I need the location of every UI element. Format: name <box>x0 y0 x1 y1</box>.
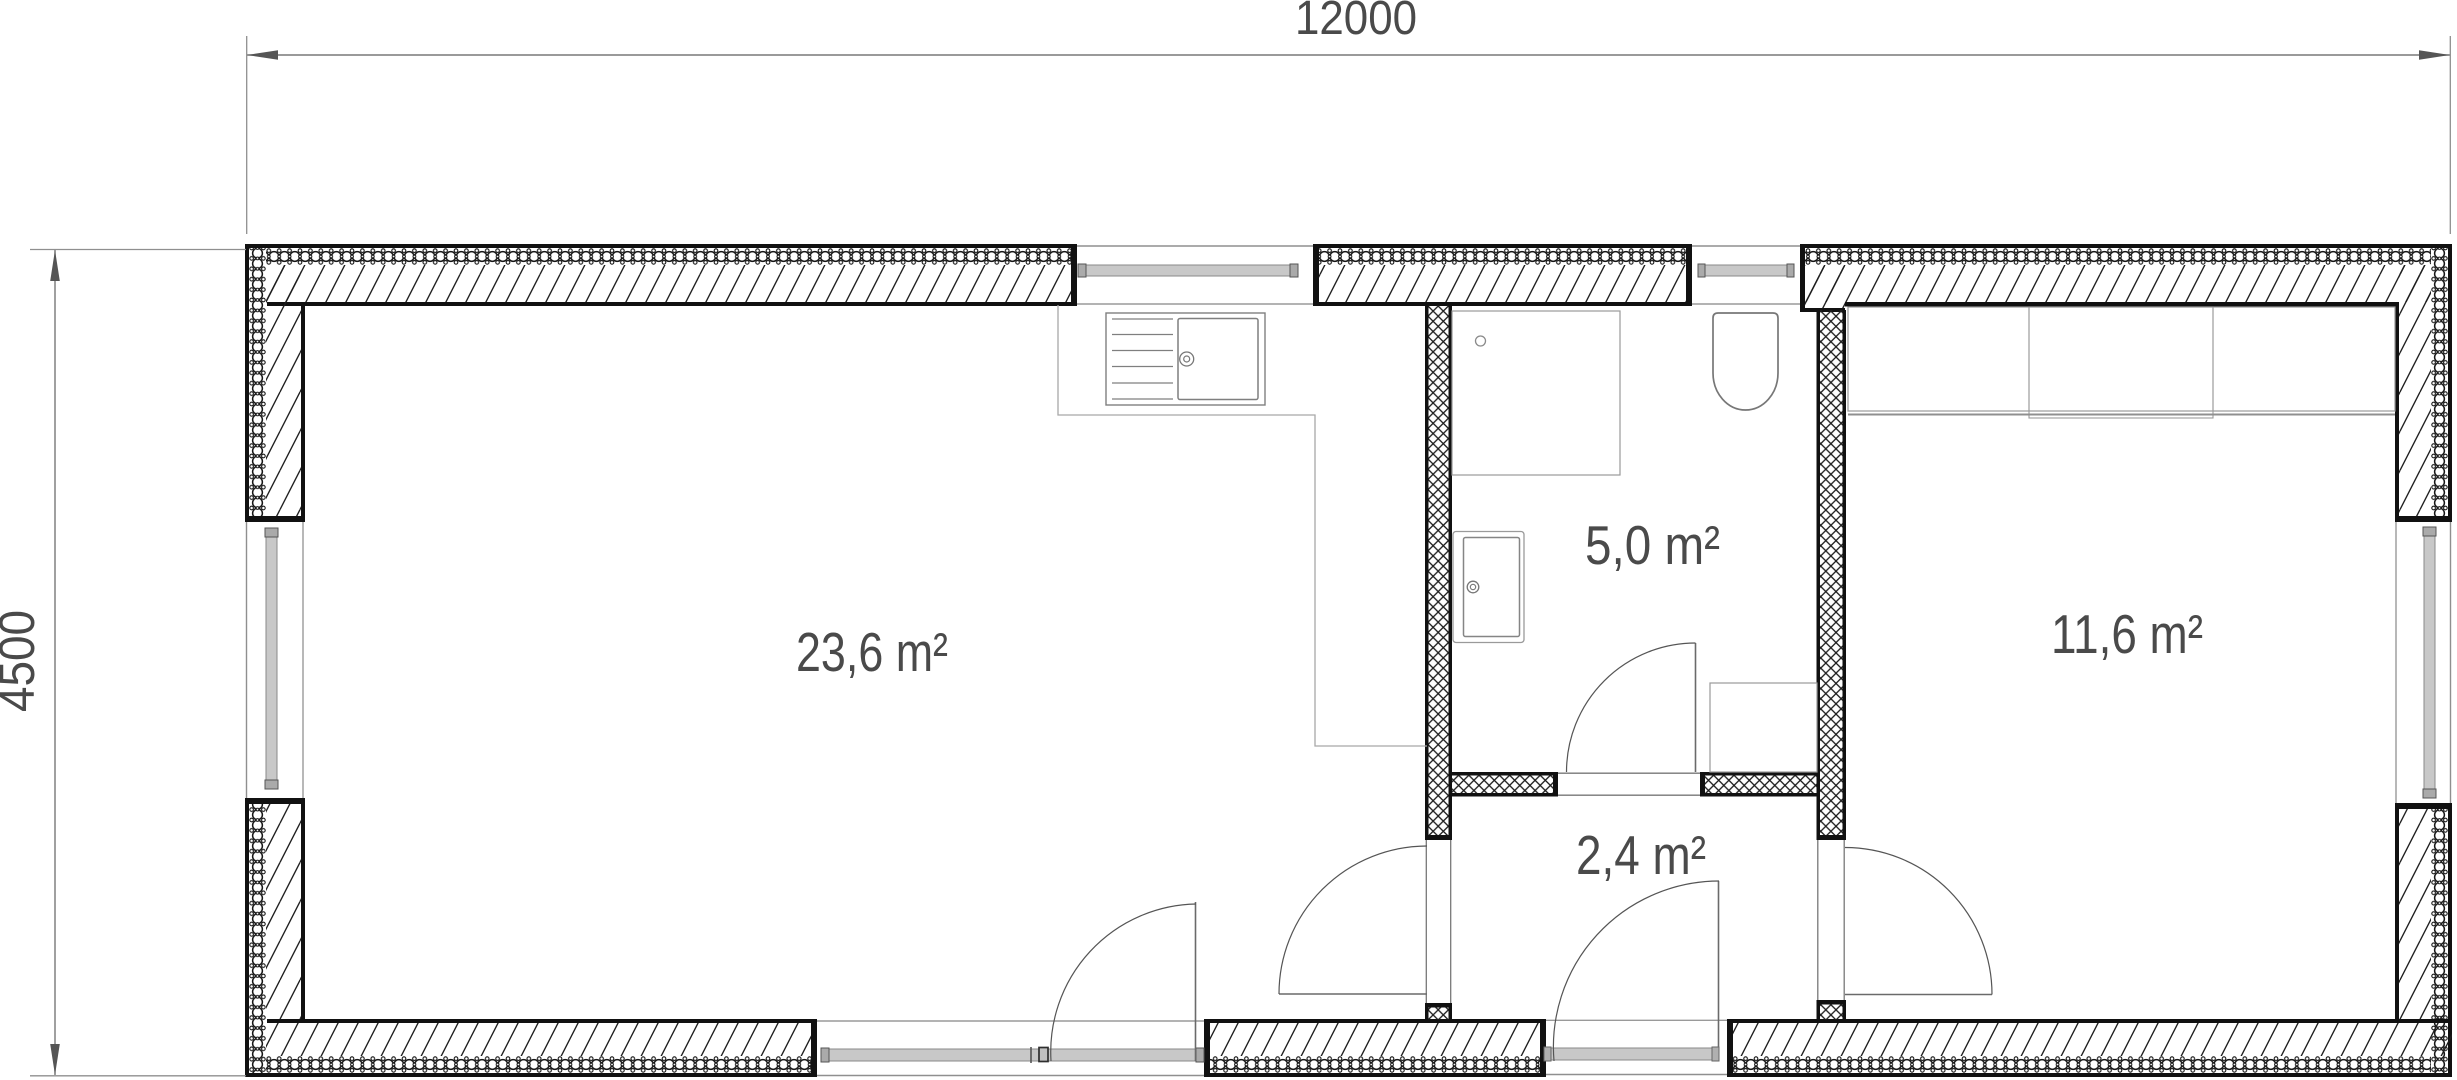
svg-text:23,6 m²: 23,6 m² <box>796 621 948 683</box>
svg-text:4500: 4500 <box>0 610 45 712</box>
svg-text:2,4 m²: 2,4 m² <box>1576 824 1706 886</box>
svg-text:5,0 m²: 5,0 m² <box>1585 514 1720 576</box>
svg-text:12000: 12000 <box>1295 0 1417 45</box>
svg-text:11,6 m²: 11,6 m² <box>2051 603 2203 665</box>
